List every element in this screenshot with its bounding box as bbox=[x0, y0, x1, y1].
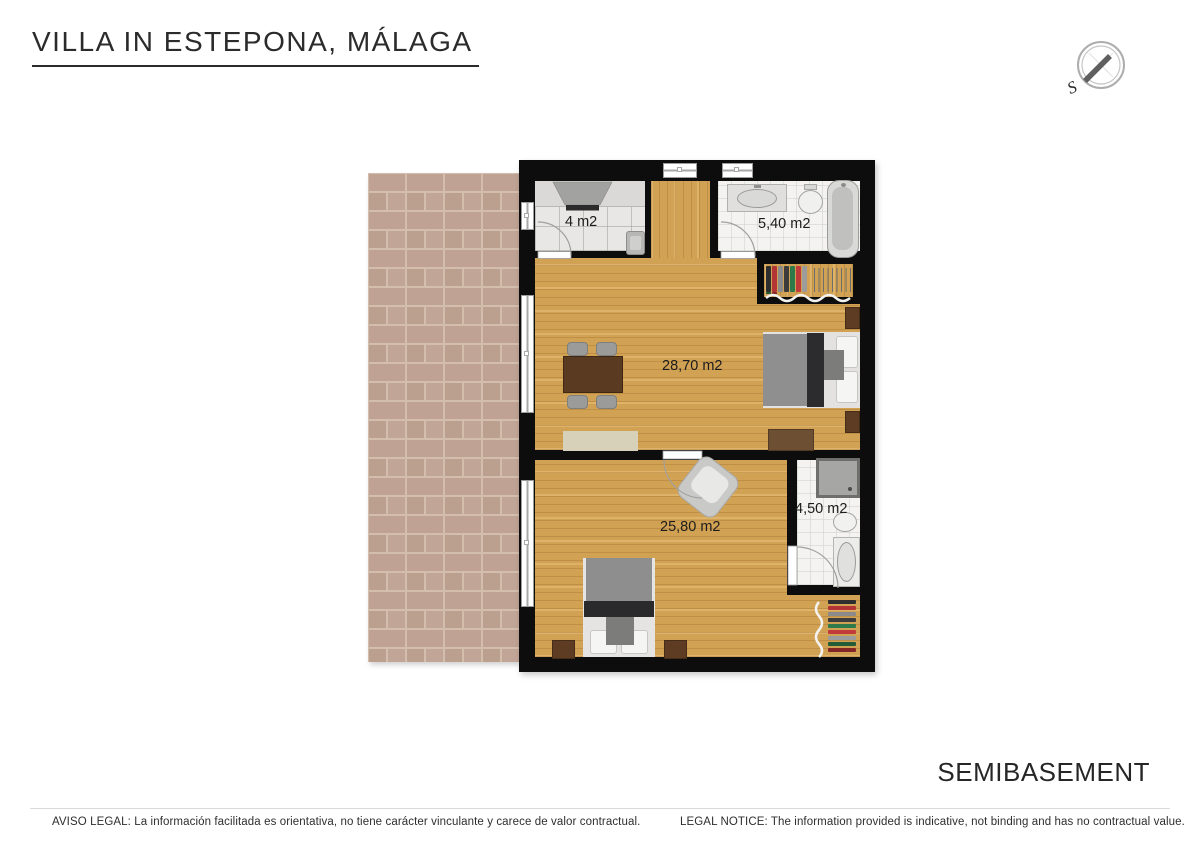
sink-basin bbox=[837, 542, 856, 582]
clothes-item bbox=[828, 624, 856, 628]
kitchen-sink-basin bbox=[630, 236, 641, 250]
clothes-item bbox=[790, 266, 795, 292]
hanger-rail bbox=[814, 268, 851, 292]
clothes-item bbox=[828, 618, 856, 622]
toilet-top bbox=[798, 190, 823, 214]
page-title: VILLA IN ESTEPONA, MÁLAGA bbox=[32, 26, 479, 67]
room-bedroom-floor bbox=[535, 460, 787, 657]
clothes-item bbox=[828, 642, 856, 646]
hallway-floor bbox=[651, 181, 710, 258]
closet-clothes bbox=[828, 600, 860, 654]
faucet-icon bbox=[841, 183, 846, 187]
room-label-bedroom: 25,80 m2 bbox=[660, 519, 720, 535]
bathtub-basin bbox=[832, 187, 853, 250]
kitchen-sink bbox=[626, 231, 645, 255]
clothes-item bbox=[828, 648, 856, 652]
legal-notice-es: AVISO LEGAL: La información facilitada e… bbox=[52, 816, 640, 828]
window-living bbox=[521, 295, 534, 413]
clothes-item bbox=[828, 606, 856, 610]
footer-divider bbox=[30, 808, 1170, 809]
clothes-item bbox=[766, 292, 771, 294]
bed-duvet bbox=[586, 558, 652, 603]
window-kitchen bbox=[521, 202, 534, 230]
nightstand bbox=[845, 307, 860, 329]
living-rug bbox=[563, 431, 638, 451]
shower bbox=[816, 458, 860, 498]
nightstand bbox=[845, 411, 860, 433]
shower-drain bbox=[848, 487, 852, 491]
faucet-icon bbox=[754, 185, 761, 188]
clothes-item bbox=[778, 266, 783, 292]
clothes-item bbox=[828, 600, 856, 604]
bed-blanket-band bbox=[584, 601, 654, 617]
dining-table bbox=[563, 356, 623, 393]
clothes-item bbox=[772, 292, 777, 294]
bedside-rug bbox=[768, 429, 814, 451]
bed-duvet bbox=[763, 334, 807, 406]
bathtub bbox=[827, 180, 859, 258]
dining-chair bbox=[567, 395, 588, 409]
double-bed-living bbox=[763, 332, 860, 408]
bed-blanket-band bbox=[807, 333, 824, 407]
dining-chair bbox=[596, 395, 617, 409]
bed-throw bbox=[824, 350, 844, 380]
clothes-item bbox=[796, 266, 801, 292]
bathroom-bottom-vanity-sink bbox=[833, 537, 860, 587]
clothes-item bbox=[828, 636, 856, 640]
bed-throw bbox=[606, 617, 634, 645]
clothes-item bbox=[766, 266, 771, 292]
clothes-item bbox=[772, 266, 777, 292]
room-label-kitchen: 4 m2 bbox=[565, 214, 597, 230]
clothes-item bbox=[802, 266, 807, 292]
floor-name-label: SEMIBASEMENT bbox=[937, 757, 1150, 788]
clothes-rack bbox=[766, 266, 812, 294]
window-bedroom bbox=[521, 480, 534, 607]
bathroom-top-vanity-sink bbox=[727, 184, 787, 212]
nightstand bbox=[552, 640, 575, 659]
double-bed-bedroom bbox=[583, 558, 655, 657]
window-top-2 bbox=[722, 163, 753, 178]
nightstand bbox=[664, 640, 687, 659]
patio-terrace bbox=[368, 173, 519, 662]
window-top-1 bbox=[663, 163, 697, 178]
clothes-item bbox=[784, 266, 789, 292]
floor-plan-page: VILLA IN ESTEPONA, MÁLAGA S bbox=[0, 0, 1200, 848]
armchair-cushion bbox=[688, 463, 732, 506]
dining-chair bbox=[596, 342, 617, 356]
dining-chair bbox=[567, 342, 588, 356]
room-label-living-dining: 28,70 m2 bbox=[662, 358, 722, 374]
sink-basin bbox=[737, 189, 777, 208]
room-label-bathroom-top: 5,40 m2 bbox=[758, 216, 810, 232]
clothes-item bbox=[828, 612, 856, 616]
room-label-bathroom-bottom: 4,50 m2 bbox=[795, 501, 847, 517]
clothes-item bbox=[828, 630, 856, 634]
page-header: VILLA IN ESTEPONA, MÁLAGA bbox=[32, 26, 479, 67]
kitchen-counter bbox=[535, 181, 645, 207]
legal-notice-en: LEGAL NOTICE: The information provided i… bbox=[680, 816, 1185, 828]
